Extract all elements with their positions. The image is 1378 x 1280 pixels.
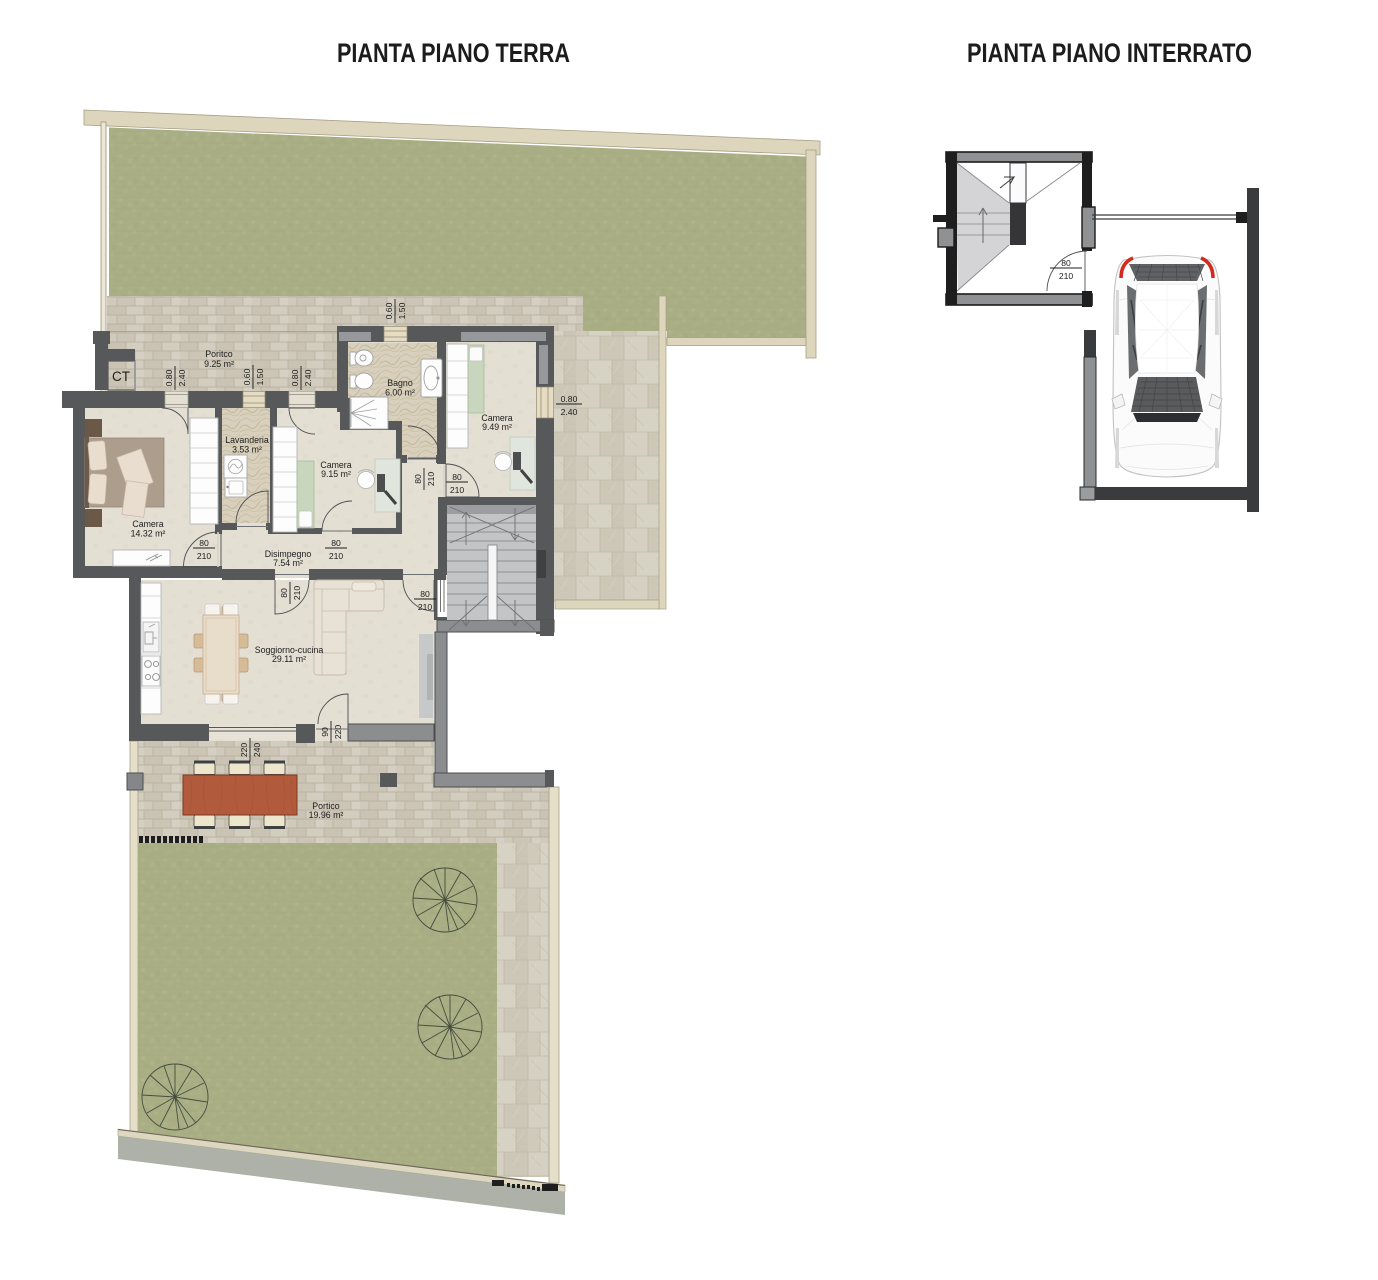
- svg-text:210: 210: [426, 472, 436, 487]
- svg-text:90: 90: [320, 727, 330, 737]
- svg-text:29.11 m²: 29.11 m²: [272, 654, 306, 664]
- svg-text:Poritco: Poritco: [205, 349, 232, 359]
- svg-text:14.32 m²: 14.32 m²: [131, 529, 166, 539]
- svg-text:220: 220: [239, 743, 249, 758]
- svg-text:1.50: 1.50: [255, 368, 265, 385]
- svg-text:0.80: 0.80: [164, 369, 174, 386]
- svg-text:80: 80: [413, 474, 423, 484]
- svg-text:210: 210: [1059, 271, 1074, 281]
- svg-text:0.60: 0.60: [242, 368, 252, 385]
- svg-text:210: 210: [450, 485, 465, 495]
- svg-text:7.54 m²: 7.54 m²: [273, 558, 303, 568]
- svg-text:240: 240: [252, 743, 262, 758]
- svg-text:80: 80: [199, 538, 209, 548]
- svg-text:2.40: 2.40: [303, 369, 313, 386]
- svg-text:19.96 m²: 19.96 m²: [309, 810, 344, 820]
- svg-text:80: 80: [279, 588, 289, 598]
- svg-text:210: 210: [329, 551, 344, 561]
- svg-text:80: 80: [331, 538, 341, 548]
- svg-text:2.40: 2.40: [177, 369, 187, 386]
- svg-text:0.60: 0.60: [384, 302, 394, 319]
- svg-text:80: 80: [420, 589, 430, 599]
- svg-text:3.53 m²: 3.53 m²: [232, 445, 262, 455]
- svg-text:0.80: 0.80: [290, 369, 300, 386]
- svg-text:220: 220: [333, 725, 343, 740]
- svg-text:9.15 m²: 9.15 m²: [321, 469, 351, 479]
- svg-text:PIANTA PIANO TERRA: PIANTA PIANO TERRA: [337, 38, 570, 68]
- svg-text:9.49 m²: 9.49 m²: [482, 422, 512, 432]
- svg-text:80: 80: [452, 472, 462, 482]
- svg-text:Lavanderia: Lavanderia: [225, 435, 269, 445]
- svg-text:PIANTA PIANO INTERRATO: PIANTA PIANO INTERRATO: [967, 38, 1252, 68]
- svg-text:Bagno: Bagno: [387, 378, 413, 388]
- svg-text:80: 80: [1061, 258, 1071, 268]
- svg-text:210: 210: [418, 602, 433, 612]
- svg-text:2.40: 2.40: [561, 407, 578, 417]
- svg-text:0.80: 0.80: [561, 394, 578, 404]
- svg-text:Camera: Camera: [132, 519, 163, 529]
- svg-text:6.00 m²: 6.00 m²: [385, 388, 415, 398]
- svg-text:210: 210: [197, 551, 212, 561]
- svg-text:CT: CT: [112, 369, 130, 384]
- svg-text:1.50: 1.50: [397, 302, 407, 319]
- svg-text:210: 210: [292, 586, 302, 601]
- svg-text:9.25 m²: 9.25 m²: [204, 359, 234, 369]
